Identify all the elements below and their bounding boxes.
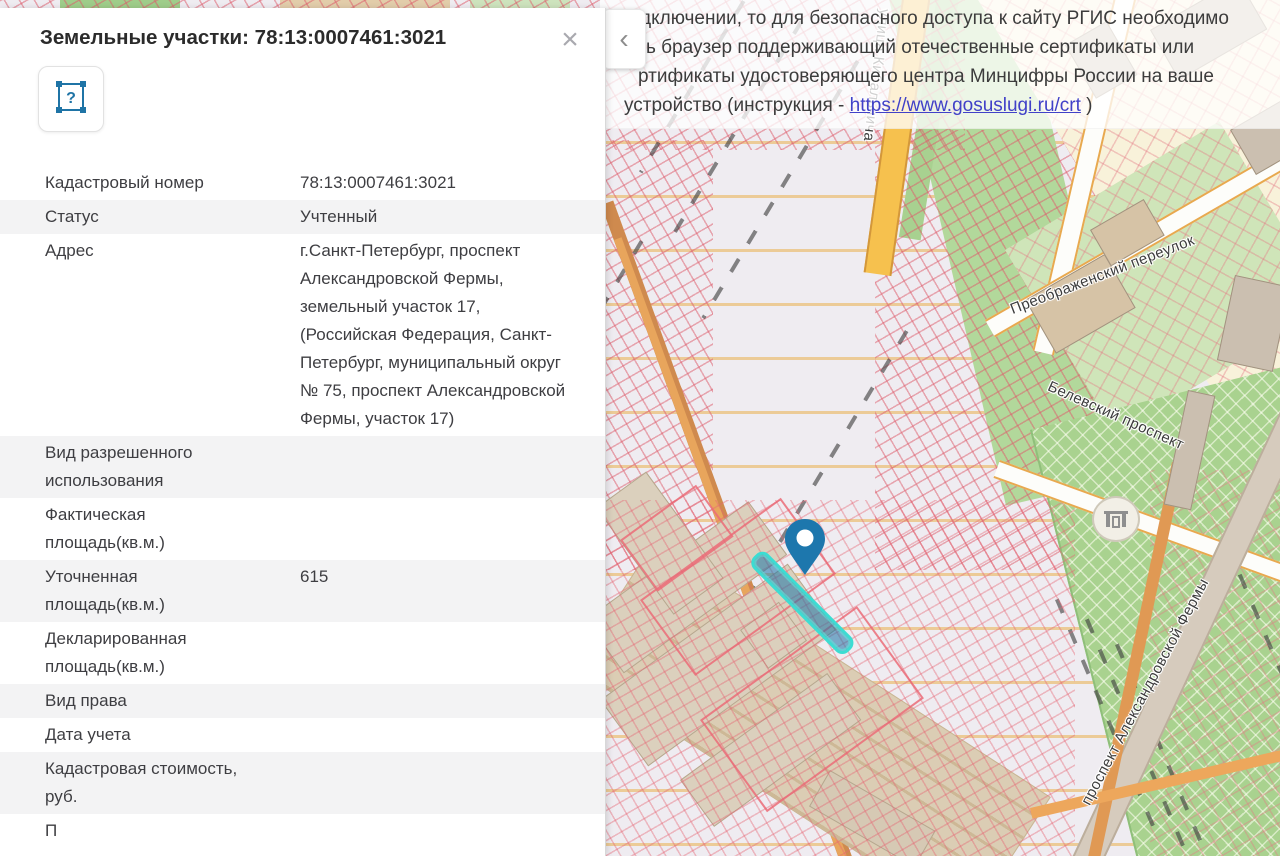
parcel-attributes-table: Кадастровый номер78:13:0007461:3021 Стат…: [0, 166, 605, 848]
identify-parcel-button[interactable]: ?: [38, 66, 104, 132]
row-value: 615: [300, 563, 575, 591]
row-label: Дата учета: [45, 721, 245, 749]
row-label: Адрес: [45, 237, 245, 265]
notification-line: дключении, то для безопасного доступа к …: [640, 8, 1229, 30]
notification-line-prefix: устройство (инструкция -: [624, 95, 850, 116]
table-row: Кадастровый номер78:13:0007461:3021: [0, 166, 605, 200]
certificate-notification-banner: дключении, то для безопасного доступа к …: [600, 0, 1280, 129]
parcel-info-panel: Земельные участки: 78:13:0007461:3021 × …: [0, 8, 606, 856]
notification-line: ртификаты удостоверяющего центра Минцифр…: [638, 66, 1214, 88]
notification-line: ь браузер поддерживающий отечественные с…: [646, 37, 1194, 59]
notification-line: устройство (инструкция - https://www.gos…: [624, 95, 1093, 117]
table-row: П: [0, 814, 605, 848]
map-layer-cadastral-hatch: [605, 500, 1075, 856]
row-label: Уточненная площадь(кв.м.): [45, 563, 245, 619]
row-label: Вид разрешенного использования: [45, 439, 245, 495]
chevron-left-icon: ‹: [619, 23, 628, 55]
table-row: Дата учета: [0, 718, 605, 752]
map-pin-icon: [782, 517, 828, 577]
table-row: Кадастровая стоимость, руб.: [0, 752, 605, 814]
row-value: г.Санкт-Петербург, проспект Александровс…: [300, 237, 575, 433]
row-value: 78:13:0007461:3021: [300, 169, 575, 197]
landmark-gate-icon: [1092, 496, 1140, 542]
notification-line-suffix: ): [1081, 95, 1093, 116]
table-row: Уточненная площадь(кв.м.)615: [0, 560, 605, 622]
row-label: Фактическая площадь(кв.м.): [45, 501, 245, 557]
row-label: П: [45, 817, 245, 845]
table-row: Адресг.Санкт-Петербург, проспект Алексан…: [0, 234, 605, 436]
gosuslugi-crt-link[interactable]: https://www.gosuslugi.ru/crt: [850, 95, 1081, 116]
close-icon[interactable]: ×: [553, 24, 587, 58]
collapse-panel-button[interactable]: ‹: [602, 9, 646, 69]
row-label: Кадастровый номер: [45, 169, 245, 197]
polygon-question-icon: ?: [53, 79, 89, 120]
row-label: Декларированная площадь(кв.м.): [45, 625, 245, 681]
table-row: СтатусУчтенный: [0, 200, 605, 234]
row-label: Кадастровая стоимость, руб.: [45, 755, 245, 811]
row-label: Вид права: [45, 687, 245, 715]
page-title: Земельные участки: 78:13:0007461:3021: [40, 26, 446, 50]
table-row: Декларированная площадь(кв.м.): [0, 622, 605, 684]
table-row: Фактическая площадь(кв.м.): [0, 498, 605, 560]
row-value: Учтенный: [300, 203, 575, 231]
table-row: Вид разрешенного использования: [0, 436, 605, 498]
row-label: Статус: [45, 203, 245, 231]
table-row: Вид права: [0, 684, 605, 718]
svg-text:?: ?: [66, 90, 76, 107]
